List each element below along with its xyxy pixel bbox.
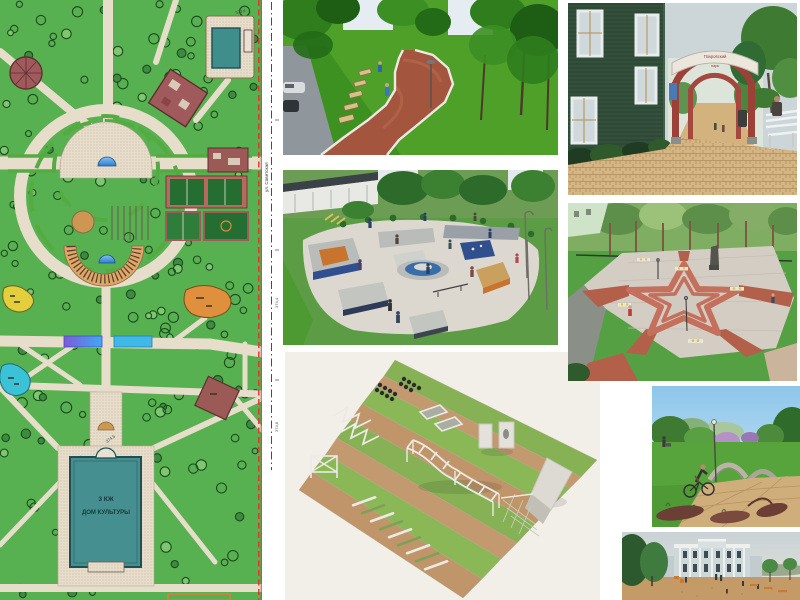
plan-pool-complex: 573,4 [206,8,254,78]
culture-house-square-render [622,532,800,600]
skatepark-scene [283,170,558,345]
walkway-render [283,0,558,155]
street-name-label: ул. Советская [264,162,269,192]
culture-building [662,539,762,577]
bike-path-render [652,386,800,527]
bike-path-scene [652,386,800,527]
plan-carousel [10,57,42,89]
margin-mark-2: 374,4 [274,297,279,308]
culture-house-label-1: 3 КЖ [98,496,113,503]
plan-basketball-courts [166,212,248,240]
plan-margin-street: ул. Советская 374,8 374,4 [262,0,283,600]
workout-scene [285,352,600,600]
street-axis: ул. Советская 374,8 374,4 [262,0,283,600]
workout-course-render [285,352,600,600]
plan-tennis-courts [166,176,247,208]
master-plan-drawing: 573,4 [0,0,262,600]
walkway-scene [283,0,558,155]
entrance-arch-scene: Покровский парк [568,3,797,195]
entrance-arch-render: Покровский парк [568,3,797,195]
arch-sign-line-1: Покровский [704,54,727,59]
plan-sport-cabinet [208,148,248,172]
trash-bin [738,110,747,127]
skatepark-render [283,170,558,345]
master-plan: 573,4 [0,0,262,600]
info-stand [669,83,677,100]
star-plaza-render [568,203,797,381]
arch-sign-line-2: парк [711,63,720,68]
culture-house-label-2: ДОМ КУЛЬТУРЫ [82,510,130,516]
margin-mark-1: 374,8 [274,421,279,432]
green-building [568,3,672,168]
culture-square-scene [622,532,800,600]
star-plaza-scene [568,203,797,381]
park-design-collage: 573,4 [0,0,800,600]
